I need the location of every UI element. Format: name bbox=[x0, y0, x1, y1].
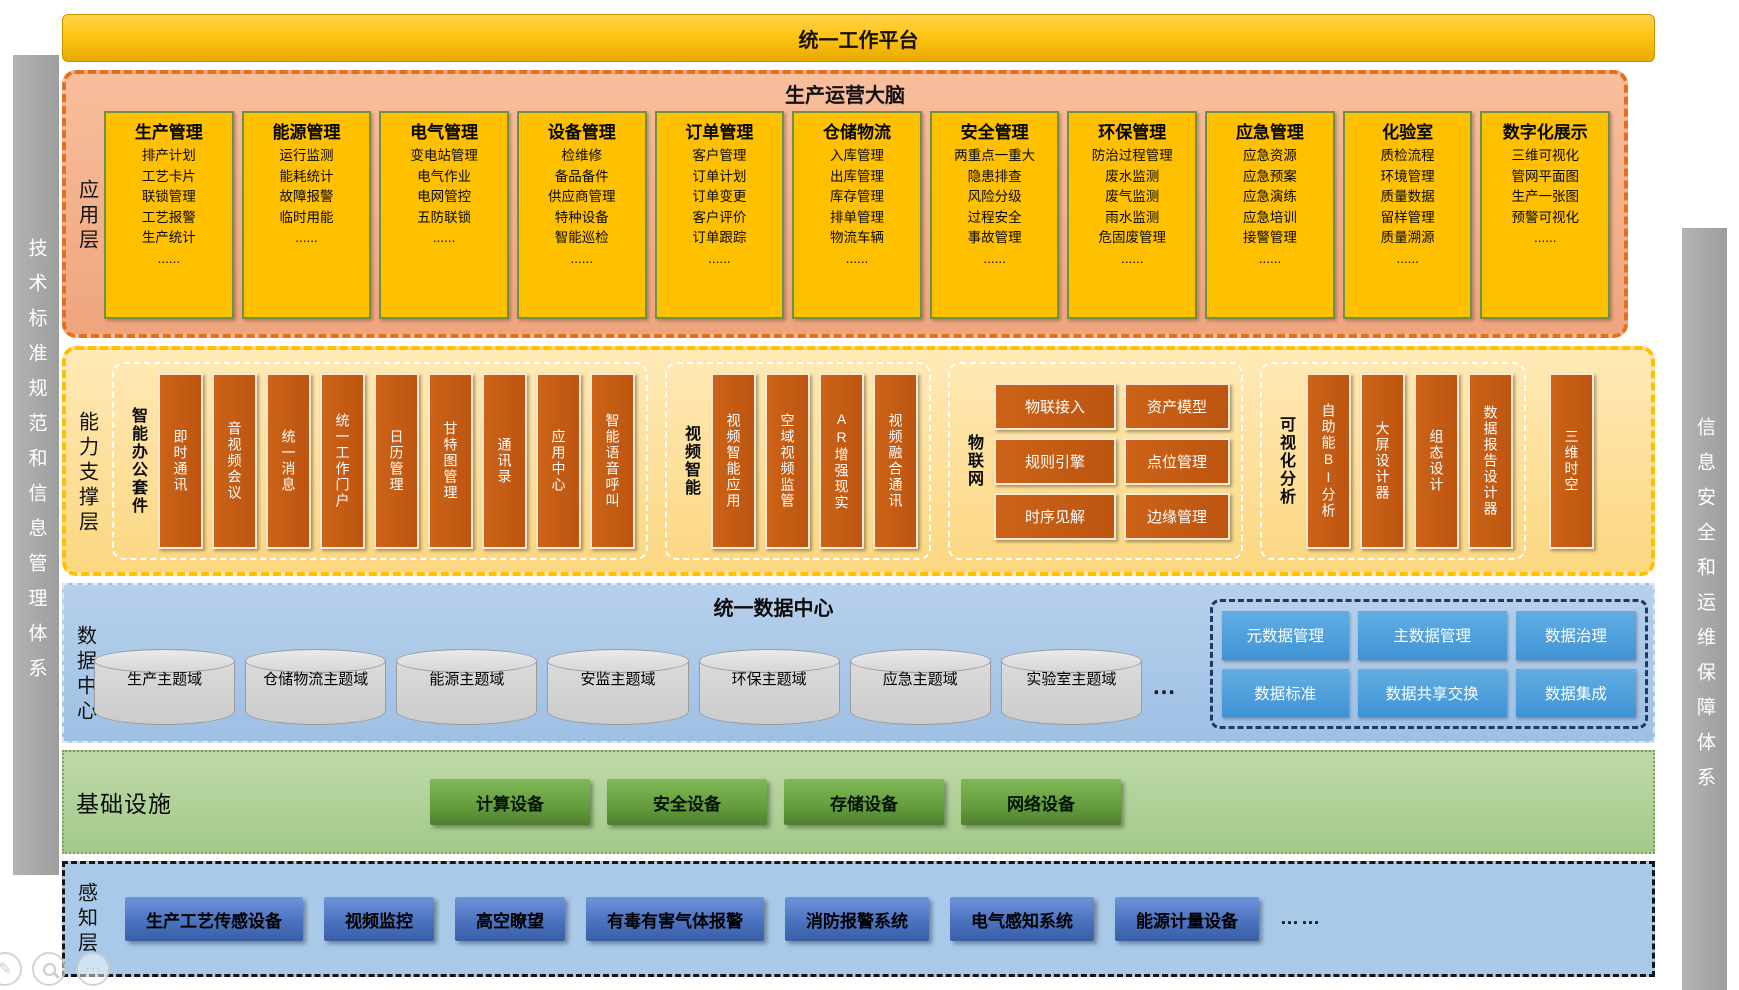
app-box-electrical: 电气管理 变电站管理 电气作业 电网管控 五防联锁 ...... bbox=[379, 111, 509, 319]
capability-bar: 通讯录 bbox=[482, 373, 527, 549]
capability-bar: 数据报告设计器 bbox=[1468, 373, 1513, 549]
cylinder-emergency-domain: 应急主题域 bbox=[850, 660, 991, 725]
cylinder-label: 环保主题域 bbox=[700, 660, 839, 689]
zoom-icon[interactable] bbox=[32, 952, 66, 986]
cylinder-energy-domain: 能源主题域 bbox=[396, 660, 537, 725]
device-network: 网络设备 bbox=[961, 779, 1121, 825]
app-box-digital-display: 数字化展示 三维可视化 管网平面图 生产一张图 预警可视化 ...... bbox=[1480, 111, 1610, 319]
app-box-title: 数字化展示 bbox=[1482, 118, 1608, 143]
device-electrical-sensing: 电气感知系统 bbox=[950, 897, 1094, 941]
infrastructure-devices-row: 计算设备 安全设备 存储设备 网络设备 bbox=[430, 779, 1121, 825]
capability-bar: 甘特图管理 bbox=[428, 373, 473, 549]
app-box-title: 环保管理 bbox=[1069, 118, 1195, 143]
app-box-energy: 能源管理 运行监测 能耗统计 故障报警 临时用能 ...... bbox=[242, 111, 372, 319]
capability-bar: 即时通讯 bbox=[158, 373, 203, 549]
more-icon[interactable]: ··· bbox=[76, 952, 110, 986]
cylinder-safety-domain: 安监主题域 bbox=[547, 660, 688, 725]
cylinder-label: 仓储物流主题域 bbox=[246, 660, 385, 689]
capability-support-layer: 能力支撑层 智能办公套件 即时通讯 音视频会议 统一消息 统一工作门户 日历管理… bbox=[62, 346, 1655, 576]
corner-toolbar: ✎ ··· bbox=[0, 952, 110, 986]
application-layer-side-label: 应用层 bbox=[71, 108, 103, 324]
iot-cell: 边缘管理 bbox=[1124, 493, 1230, 540]
cylinder-label: 应急主题域 bbox=[851, 660, 990, 689]
app-box-production: 生产管理 排产计划 工艺卡片 联锁管理 工艺报警 生产统计 ...... bbox=[104, 111, 234, 319]
app-box-laboratory: 化验室 质检流程 环境管理 质量数据 留样管理 质量溯源 ...... bbox=[1343, 111, 1473, 319]
app-box-title: 订单管理 bbox=[657, 118, 783, 143]
app-box-title: 安全管理 bbox=[932, 118, 1058, 143]
app-box-title: 电气管理 bbox=[381, 118, 507, 143]
capability-bar: 视频智能应用 bbox=[711, 373, 756, 549]
device-high-altitude-watch: 高空瞭望 bbox=[455, 897, 565, 941]
app-box-items: 入库管理 出库管理 库存管理 排单管理 物流车辆 ...... bbox=[794, 146, 920, 269]
governance-cell: 主数据管理 bbox=[1358, 611, 1507, 660]
app-box-items: 防治过程管理 废水监测 废气监测 雨水监测 危固废管理 ...... bbox=[1069, 146, 1195, 269]
cylinder-environment-domain: 环保主题域 bbox=[699, 660, 840, 725]
architecture-diagram: 技术标准规范和信息管理体系 信息安全和运维保障体系 统一工作平台 生产运营大脑 … bbox=[0, 0, 1739, 990]
infrastructure-label: 基础设施 bbox=[76, 785, 172, 819]
group-iot: 物联网 物联接入 资产模型 规则引擎 点位管理 时序见解 边缘管理 bbox=[948, 362, 1243, 560]
capability-bar: AR增强现实 bbox=[819, 373, 864, 549]
app-box-items: 质检流程 环境管理 质量数据 留样管理 质量溯源 ...... bbox=[1345, 146, 1471, 269]
perception-layer-side-label: 感知层 bbox=[70, 874, 102, 964]
app-box-safety: 安全管理 两重点一重大 隐患排查 风险分级 过程安全 事故管理 ...... bbox=[930, 111, 1060, 319]
cylinder-label: 安监主题域 bbox=[548, 660, 687, 689]
capability-bar: 统一消息 bbox=[266, 373, 311, 549]
perception-ellipsis: …… bbox=[1280, 908, 1322, 930]
right-pillar-label: 信息安全和运维保障体系 bbox=[1691, 417, 1718, 802]
app-box-items: 三维可视化 管网平面图 生产一张图 预警可视化 ...... bbox=[1482, 146, 1608, 249]
app-box-title: 生产管理 bbox=[106, 118, 232, 143]
iot-grid: 物联接入 资产模型 规则引擎 点位管理 时序见解 边缘管理 bbox=[994, 383, 1230, 540]
app-box-items: 检维修 备品备件 供应商管理 特种设备 智能巡检 ...... bbox=[519, 146, 645, 269]
capability-bar-3d-spacetime: 三维时空 bbox=[1549, 373, 1594, 549]
app-box-equipment: 设备管理 检维修 备品备件 供应商管理 特种设备 智能巡检 ...... bbox=[517, 111, 647, 319]
left-pillar: 技术标准规范和信息管理体系 bbox=[13, 55, 59, 875]
device-computing: 计算设备 bbox=[430, 779, 590, 825]
governance-cell: 数据集成 bbox=[1516, 669, 1636, 718]
device-fire-alarm-system: 消防报警系统 bbox=[785, 897, 929, 941]
unified-platform-title: 统一工作平台 bbox=[799, 24, 919, 53]
app-box-items: 排产计划 工艺卡片 联锁管理 工艺报警 生产统计 ...... bbox=[106, 146, 232, 269]
app-box-items: 变电站管理 电气作业 电网管控 五防联锁 ...... bbox=[381, 146, 507, 249]
app-box-items: 运行监测 能耗统计 故障报警 临时用能 ...... bbox=[244, 146, 370, 249]
application-layer-title: 生产运营大脑 bbox=[66, 79, 1624, 108]
app-box-warehouse-logistics: 仓储物流 入库管理 出库管理 库存管理 排单管理 物流车辆 ...... bbox=[792, 111, 922, 319]
app-box-title: 仓储物流 bbox=[794, 118, 920, 143]
app-box-title: 化验室 bbox=[1345, 118, 1471, 143]
capability-bar: 空域视频监管 bbox=[765, 373, 810, 549]
iot-cell: 资产模型 bbox=[1124, 383, 1230, 430]
app-box-items: 两重点一重大 隐患排查 风险分级 过程安全 事故管理 ...... bbox=[932, 146, 1058, 269]
cylinder-label: 能源主题域 bbox=[397, 660, 536, 689]
group-smart-office-suite: 智能办公套件 即时通讯 音视频会议 统一消息 统一工作门户 日历管理 甘特图管理… bbox=[112, 362, 648, 560]
capability-bar: 大屏设计器 bbox=[1360, 373, 1405, 549]
capability-bar: 智能语音呼叫 bbox=[590, 373, 635, 549]
domains-ellipsis: … bbox=[1152, 673, 1178, 701]
group-video-intelligence: 视频智能 视频智能应用 空域视频监管 AR增强现实 视频融合通讯 bbox=[665, 362, 931, 560]
capability-bar: 音视频会议 bbox=[212, 373, 257, 549]
iot-cell: 点位管理 bbox=[1124, 438, 1230, 485]
capability-bar: 视频融合通讯 bbox=[873, 373, 918, 549]
iot-cell: 物联接入 bbox=[994, 383, 1116, 430]
group-label: 可视化分析 bbox=[1273, 416, 1297, 506]
governance-cell: 元数据管理 bbox=[1222, 611, 1349, 660]
data-domain-cylinders: 生产主题域 仓储物流主题域 能源主题域 安监主题域 环保主题域 应急主题域 实验… bbox=[94, 649, 1142, 725]
capability-bar: 日历管理 bbox=[374, 373, 419, 549]
governance-cell: 数据治理 bbox=[1516, 611, 1636, 660]
group-label: 视频智能 bbox=[678, 425, 702, 497]
capability-groups-row: 智能办公套件 即时通讯 音视频会议 统一消息 统一工作门户 日历管理 甘特图管理… bbox=[112, 350, 1645, 572]
data-governance-panel: 元数据管理 主数据管理 数据治理 数据标准 数据共享交换 数据集成 bbox=[1210, 599, 1648, 729]
cylinder-warehouse-domain: 仓储物流主题域 bbox=[245, 660, 386, 725]
device-storage: 存储设备 bbox=[784, 779, 944, 825]
capability-bar: 自助能BI分析 bbox=[1306, 373, 1351, 549]
application-boxes-row: 生产管理 排产计划 工艺卡片 联锁管理 工艺报警 生产统计 ...... 能源管… bbox=[104, 111, 1610, 319]
infrastructure-layer: 基础设施 计算设备 安全设备 存储设备 网络设备 bbox=[62, 750, 1655, 854]
group-label: 物联网 bbox=[961, 434, 985, 488]
capability-bar: 组态设计 bbox=[1414, 373, 1459, 549]
device-toxic-gas-alarm: 有毒有害气体报警 bbox=[586, 897, 764, 941]
cylinder-laboratory-domain: 实验室主题域 bbox=[1001, 660, 1142, 725]
data-center-layer: 数据中心 统一数据中心 生产主题域 仓储物流主题域 能源主题域 安监主题域 环保… bbox=[62, 583, 1655, 743]
capability-bar: 应用中心 bbox=[536, 373, 581, 549]
device-process-sensors: 生产工艺传感设备 bbox=[125, 897, 303, 941]
app-box-orders: 订单管理 客户管理 订单计划 订单变更 客户评价 订单跟踪 ...... bbox=[655, 111, 785, 319]
group-visual-analytics: 可视化分析 自助能BI分析 大屏设计器 组态设计 数据报告设计器 bbox=[1260, 362, 1526, 560]
app-box-environment: 环保管理 防治过程管理 废水监测 废气监测 雨水监测 危固废管理 ...... bbox=[1067, 111, 1197, 319]
cylinder-label: 生产主题域 bbox=[95, 660, 234, 689]
device-security: 安全设备 bbox=[607, 779, 767, 825]
app-box-title: 设备管理 bbox=[519, 118, 645, 143]
application-layer: 生产运营大脑 应用层 生产管理 排产计划 工艺卡片 联锁管理 工艺报警 生产统计… bbox=[62, 70, 1628, 338]
app-box-title: 应急管理 bbox=[1207, 118, 1333, 143]
iot-cell: 规则引擎 bbox=[994, 438, 1116, 485]
perception-layer: 感知层 生产工艺传感设备 视频监控 高空瞭望 有毒有害气体报警 消防报警系统 电… bbox=[62, 861, 1655, 977]
edit-icon[interactable]: ✎ bbox=[0, 952, 22, 986]
app-box-emergency: 应急管理 应急资源 应急预案 应急演练 应急培训 接警管理 ...... bbox=[1205, 111, 1335, 319]
left-pillar-label: 技术标准规范和信息管理体系 bbox=[23, 238, 50, 693]
capability-layer-side-label: 能力支撑层 bbox=[71, 384, 103, 562]
cylinder-label: 实验室主题域 bbox=[1002, 660, 1141, 689]
app-box-items: 应急资源 应急预案 应急演练 应急培训 接警管理 ...... bbox=[1207, 146, 1333, 269]
capability-bar: 统一工作门户 bbox=[320, 373, 365, 549]
app-box-title: 能源管理 bbox=[244, 118, 370, 143]
cylinder-production-domain: 生产主题域 bbox=[94, 660, 235, 725]
unified-platform-bar: 统一工作平台 bbox=[62, 14, 1655, 62]
group-label: 智能办公套件 bbox=[125, 407, 149, 515]
governance-cell: 数据共享交换 bbox=[1358, 669, 1507, 718]
perception-devices-row: 生产工艺传感设备 视频监控 高空瞭望 有毒有害气体报警 消防报警系统 电气感知系… bbox=[125, 897, 1322, 941]
device-video-surveillance: 视频监控 bbox=[324, 897, 434, 941]
right-pillar: 信息安全和运维保障体系 bbox=[1682, 228, 1727, 990]
governance-cell: 数据标准 bbox=[1222, 669, 1349, 718]
magnifier-glyph bbox=[43, 963, 56, 976]
app-box-items: 客户管理 订单计划 订单变更 客户评价 订单跟踪 ...... bbox=[657, 146, 783, 269]
device-energy-metering: 能源计量设备 bbox=[1115, 897, 1259, 941]
iot-cell: 时序见解 bbox=[994, 493, 1116, 540]
